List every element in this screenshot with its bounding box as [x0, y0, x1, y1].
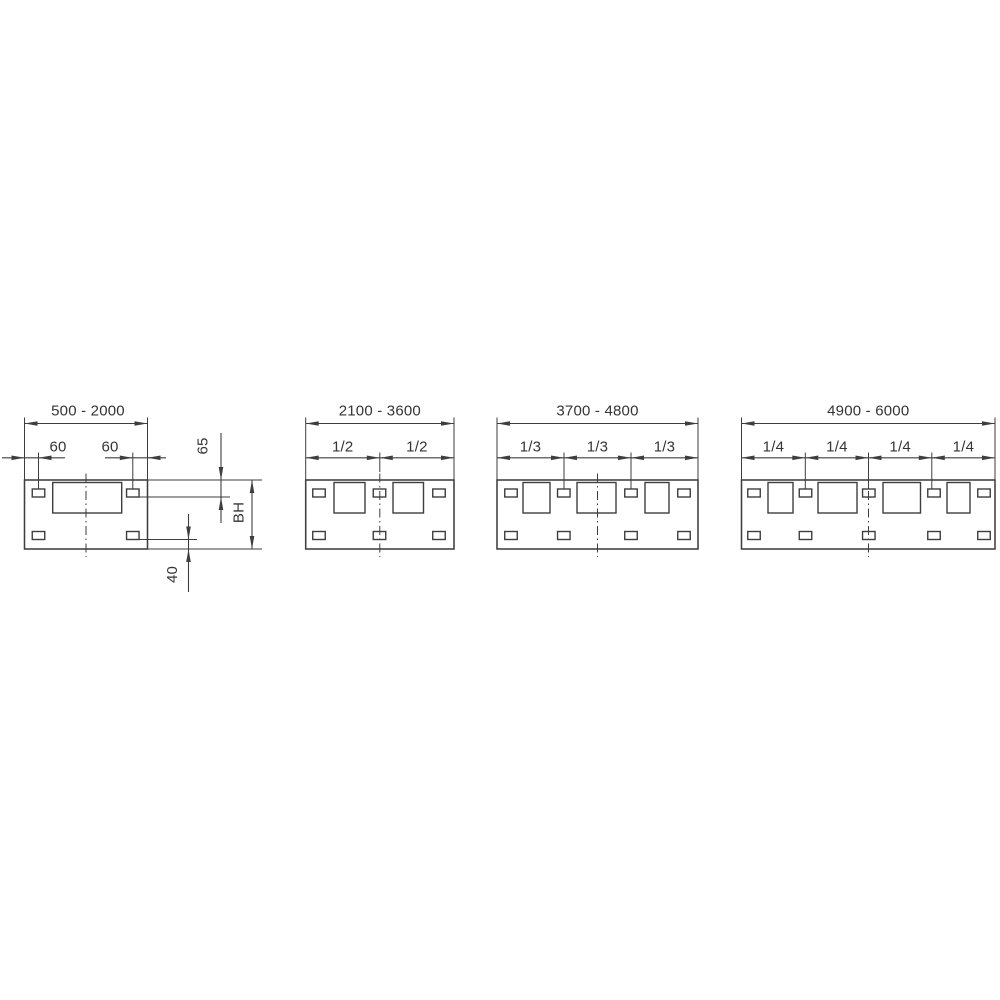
division-label: 1/2 — [406, 439, 427, 456]
vertical-dimension-label: 40 — [164, 566, 181, 583]
vertical-dimension-40: 40 — [164, 514, 191, 592]
window-cutout — [947, 483, 970, 514]
dimension-arrowhead — [685, 456, 698, 461]
division-label: 1/4 — [763, 439, 784, 456]
window-cutout — [334, 483, 365, 514]
mounting-slot-bottom — [799, 532, 812, 540]
division-label: 1/2 — [332, 439, 353, 456]
mounting-slot-top — [433, 489, 446, 497]
dimension-arrowhead — [25, 421, 38, 426]
dimension-arrowhead — [367, 456, 380, 461]
mounting-slot-top — [505, 489, 518, 497]
dimension-arrowhead — [12, 456, 25, 461]
dimension-arrowhead — [982, 421, 995, 426]
dimension-arrowhead — [982, 456, 995, 461]
panel-view-4: 4900 - 60001/41/41/41/4 — [742, 403, 996, 558]
mounting-slot-top — [313, 489, 326, 497]
dimension-arrowhead — [742, 421, 755, 426]
window-cutout — [645, 483, 669, 514]
mounting-slot-bottom — [928, 532, 941, 540]
dimension-arrowhead — [135, 421, 148, 426]
window-cutout — [883, 483, 921, 514]
mounting-slot-bottom — [127, 532, 140, 540]
edge-offset-dimension: 60 — [101, 439, 166, 490]
width-range-label: 3700 - 4800 — [556, 403, 638, 420]
panel-view-2: 2100 - 36001/21/2 — [306, 403, 454, 558]
window-cutout — [577, 483, 616, 514]
division-label: 1/4 — [889, 439, 910, 456]
dimension-arrowhead — [919, 456, 932, 461]
mounting-slot-top — [678, 489, 691, 497]
mounting-slot-bottom — [313, 532, 326, 540]
mounting-slot-top — [558, 489, 571, 497]
dimension-arrowhead — [497, 421, 510, 426]
division-label: 1/3 — [654, 439, 675, 456]
edge-offset-dimension: 60 — [2, 439, 67, 490]
division-label: 1/4 — [826, 439, 847, 456]
dimension-arrowhead — [869, 456, 882, 461]
width-range-label: 500 - 2000 — [51, 403, 125, 420]
dimension-arrowhead — [441, 421, 454, 426]
dimension-arrowhead — [186, 549, 191, 562]
window-cutout — [53, 483, 122, 514]
window-cutout — [523, 483, 550, 514]
mounting-slot-top — [32, 489, 45, 497]
mounting-slot-top — [978, 489, 991, 497]
width-range-label: 4900 - 6000 — [827, 403, 909, 420]
width-range-label: 2100 - 3600 — [339, 403, 421, 420]
dimension-arrowhead — [219, 467, 224, 480]
window-cutout — [768, 483, 793, 514]
mounting-slot-top — [748, 489, 761, 497]
dimension-arrowhead — [219, 497, 224, 510]
window-cutout — [818, 483, 857, 514]
mounting-slot-bottom — [748, 532, 761, 540]
dimension-arrowhead — [497, 456, 510, 461]
dimension-arrowhead — [306, 456, 319, 461]
division-label: 1/4 — [953, 439, 974, 456]
dimension-arrowhead — [742, 456, 755, 461]
mounting-slot-top — [928, 489, 941, 497]
mounting-slot-bottom — [678, 532, 691, 540]
edge-offset-label: 60 — [101, 439, 118, 456]
dimension-arrowhead — [306, 421, 319, 426]
dimension-arrowhead — [856, 456, 869, 461]
dimension-arrowhead — [250, 480, 255, 493]
window-cutout — [393, 483, 424, 514]
panel-view-1: 500 - 2000606065BH40 — [2, 403, 262, 593]
dimension-arrowhead — [631, 456, 644, 461]
dimension-arrowhead — [441, 456, 454, 461]
division-dimension: 1/41/41/41/4 — [742, 439, 996, 490]
width-dimension: 500 - 2000 — [25, 403, 148, 481]
dimension-arrowhead — [551, 456, 564, 461]
dimension-arrowhead — [805, 456, 818, 461]
vertical-dimension-label: 65 — [195, 437, 212, 454]
mounting-slot-bottom — [978, 532, 991, 540]
division-label: 1/3 — [587, 439, 608, 456]
mounting-slot-bottom — [505, 532, 518, 540]
division-dimension: 1/21/2 — [306, 439, 454, 473]
dimension-arrowhead — [39, 456, 52, 461]
mounting-slot-top — [127, 489, 140, 497]
vertical-dimension-label: BH — [231, 502, 248, 523]
mounting-slot-bottom — [625, 532, 638, 540]
dimension-arrowhead — [932, 456, 945, 461]
dimension-arrowhead — [120, 456, 133, 461]
dimension-drawing: 500 - 2000606065BH402100 - 36001/21/2370… — [0, 0, 1000, 1000]
dimension-arrowhead — [564, 456, 577, 461]
vertical-dimension-bh: BH — [231, 480, 255, 549]
dimension-arrowhead — [148, 456, 161, 461]
dimension-arrowhead — [685, 421, 698, 426]
dimension-arrowhead — [186, 527, 191, 540]
dimension-arrowhead — [250, 536, 255, 549]
technical-drawing-figure: 500 - 2000606065BH402100 - 36001/21/2370… — [0, 0, 1000, 1000]
mounting-slot-top — [799, 489, 812, 497]
division-label: 1/3 — [520, 439, 541, 456]
edge-offset-label: 60 — [49, 439, 66, 456]
mounting-slot-bottom — [433, 532, 446, 540]
dimension-arrowhead — [618, 456, 631, 461]
mounting-slot-top — [625, 489, 638, 497]
dimension-arrowhead — [792, 456, 805, 461]
vertical-dimension-65: 65 — [195, 433, 224, 523]
mounting-slot-bottom — [558, 532, 571, 540]
dimension-arrowhead — [380, 456, 393, 461]
panel-view-3: 3700 - 48001/31/31/3 — [497, 403, 698, 558]
mounting-slot-bottom — [32, 532, 45, 540]
